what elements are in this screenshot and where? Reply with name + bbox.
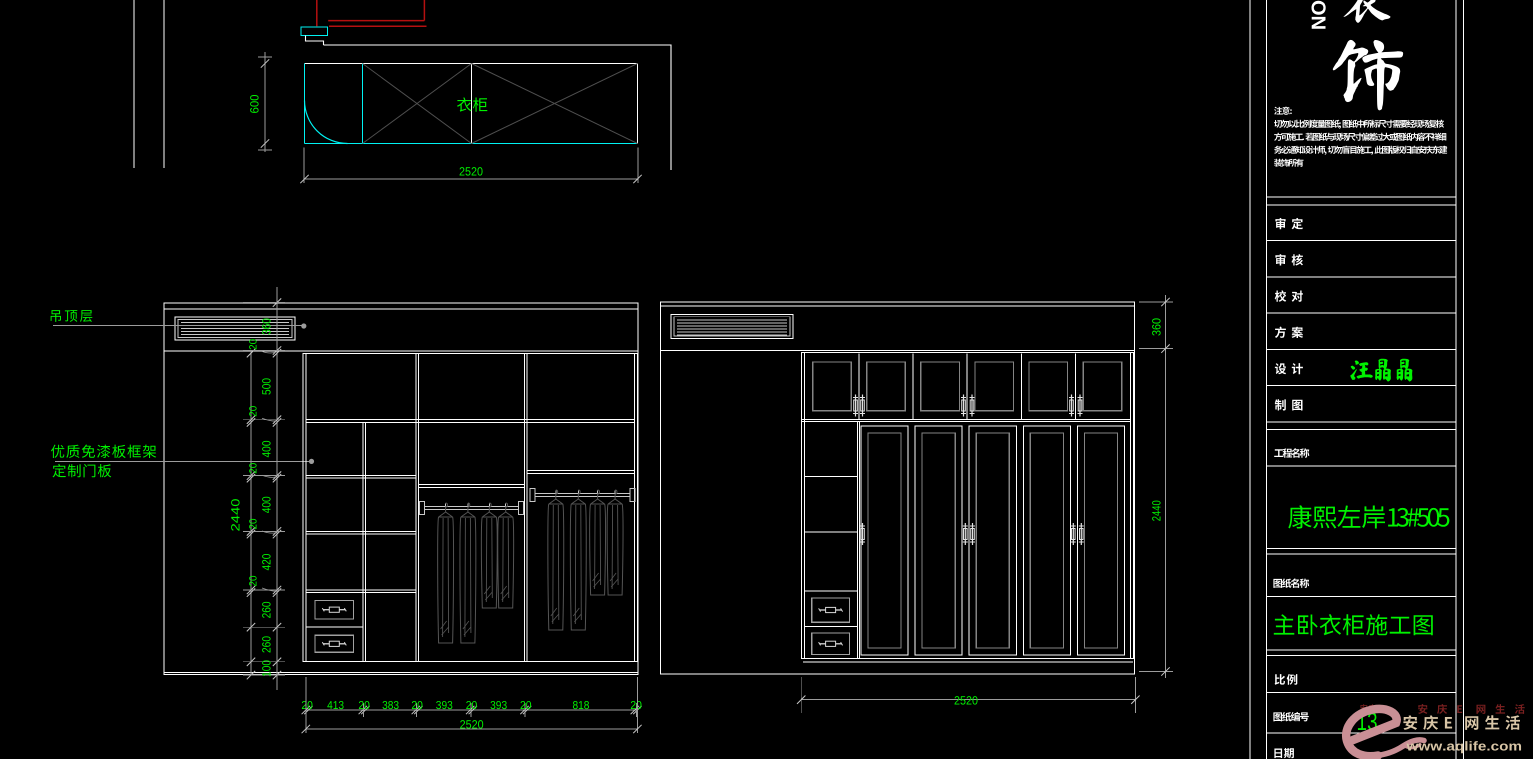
- svg-text:20: 20: [248, 463, 260, 474]
- svg-text:2520: 2520: [460, 718, 484, 732]
- svg-text:600: 600: [248, 94, 262, 113]
- svg-text:20: 20: [301, 700, 313, 712]
- svg-text:400: 400: [260, 496, 274, 513]
- svg-text:500: 500: [260, 378, 274, 395]
- svg-text:20: 20: [466, 700, 478, 712]
- svg-text:2520: 2520: [459, 165, 483, 179]
- svg-text:420: 420: [260, 553, 274, 570]
- svg-text:20: 20: [248, 518, 260, 529]
- svg-text:20: 20: [630, 700, 642, 712]
- svg-text:2440: 2440: [1150, 500, 1164, 521]
- svg-text:100: 100: [260, 660, 274, 677]
- svg-text:20: 20: [411, 700, 423, 712]
- svg-text:393: 393: [490, 700, 507, 712]
- svg-text:400: 400: [260, 440, 274, 457]
- svg-text:20: 20: [358, 700, 370, 712]
- svg-text:20: 20: [248, 339, 260, 350]
- svg-text:413: 413: [327, 700, 344, 712]
- svg-text:818: 818: [572, 700, 589, 712]
- svg-text:393: 393: [436, 700, 453, 712]
- svg-text:20: 20: [248, 406, 260, 417]
- svg-text:2520: 2520: [954, 694, 978, 708]
- svg-text:20: 20: [248, 575, 260, 586]
- svg-text:383: 383: [382, 700, 399, 712]
- svg-text:260: 260: [260, 636, 274, 653]
- svg-text:260: 260: [260, 601, 274, 618]
- svg-text:360: 360: [260, 318, 274, 335]
- svg-text:20: 20: [520, 700, 532, 712]
- svg-text:360: 360: [1150, 318, 1164, 336]
- svg-text:2440: 2440: [229, 498, 243, 531]
